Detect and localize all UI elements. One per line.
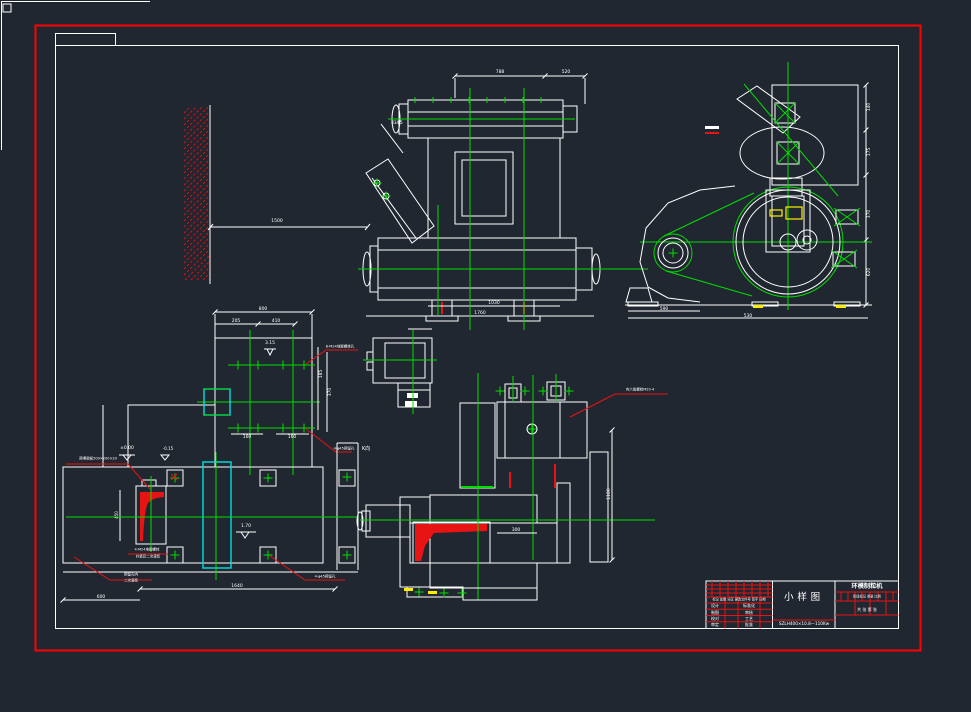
dimension-text: 1500 (271, 219, 282, 224)
dimension-text: 300 (512, 528, 521, 533)
dimension-text: 160 (288, 435, 297, 440)
dimension-text: 预埋钢板500×200×20 (79, 457, 117, 461)
dimension-text: 拧紧后二次灌浆 (136, 555, 161, 559)
tb-row-design: 设计 (711, 604, 719, 608)
dimension-text: K向 (362, 447, 370, 452)
product-name: 环模制粒机 (851, 584, 882, 590)
dimension-text: 370 (867, 210, 872, 219)
plan-view-machine (358, 74, 648, 331)
canvas-edge-artifacts (2, 2, 151, 151)
side-view-machine (625, 62, 872, 318)
detail-view-bearing (363, 329, 437, 414)
wall-section-hatch (184, 105, 370, 284)
dimension-text: 内六角螺栓M20-4 (626, 388, 654, 392)
dimension-text: 520 (562, 70, 571, 75)
dimension-text: 1760 (474, 311, 485, 316)
dimension-text: 预留孔内 (124, 573, 138, 577)
drawing-title: 小样图 (784, 593, 824, 603)
dimension-text: 185 (319, 370, 324, 379)
dimension-text: 1640 (231, 584, 242, 589)
dimension-text: 600 (97, 595, 106, 600)
dimension-text: 二次灌浆 (124, 579, 138, 583)
tb-row-approve: 审定 (711, 623, 719, 627)
tb-row-audit: 审核 (745, 611, 753, 615)
dimension-text: 788 (496, 70, 505, 75)
dimension-text: 175 (867, 148, 872, 157)
cad-canvas[interactable] (0, 0, 971, 712)
dimension-text: 620 (867, 268, 872, 277)
dimension-text: 590 (660, 307, 669, 312)
tb-row-draft: 制图 (711, 611, 719, 615)
revision-header: 标记 处数 分区 更改文件号 签字 日期 (712, 598, 765, 601)
tb-row-standard: 标准化 (743, 604, 755, 608)
foundation-plan (103, 310, 358, 476)
dimension-text: 370 (328, 388, 333, 397)
dimension-text: 410 (272, 319, 281, 324)
dimension-text: 140 (867, 103, 872, 112)
dimension-text: 160 (243, 435, 252, 440)
sheet-count: 共 张 第 张 (857, 608, 877, 612)
dimension-text: 1180 (607, 488, 612, 499)
dimension-text: 8-M24地脚螺栓孔 (326, 345, 354, 349)
dimension-text: 3.15 (265, 341, 275, 346)
dimension-text: 4-φ45预留孔 (334, 447, 355, 451)
dimension-text: 530 (744, 314, 753, 319)
dimension-text: 4-φ45预留孔 (315, 575, 336, 579)
dimension-text: 4-M24地脚螺栓 (135, 548, 160, 552)
model-number: SZLH400×10.8—110Kw (779, 622, 829, 626)
tb-row-check: 校对 (711, 617, 719, 621)
dimension-text: 800 (259, 307, 268, 312)
dimension-text: 1030 (488, 301, 499, 306)
tb-row-process: 工艺 (745, 617, 753, 621)
tb-row-ratify: 批准 (745, 623, 753, 627)
dimension-text: -0.15 (163, 447, 173, 451)
dimension-text: 1.70 (241, 524, 251, 529)
dimension-text: 834.5 (391, 121, 402, 125)
dimension-text: 205 (232, 319, 241, 324)
dimension-text: 450 (115, 511, 119, 519)
foundation-section (61, 443, 359, 603)
cad-viewport[interactable]: 788520834.515001030176014017537062059053… (0, 0, 971, 712)
stage-header: 阶段标记 重量 比例 (853, 595, 881, 598)
dimension-text: ±0.00 (120, 446, 134, 451)
